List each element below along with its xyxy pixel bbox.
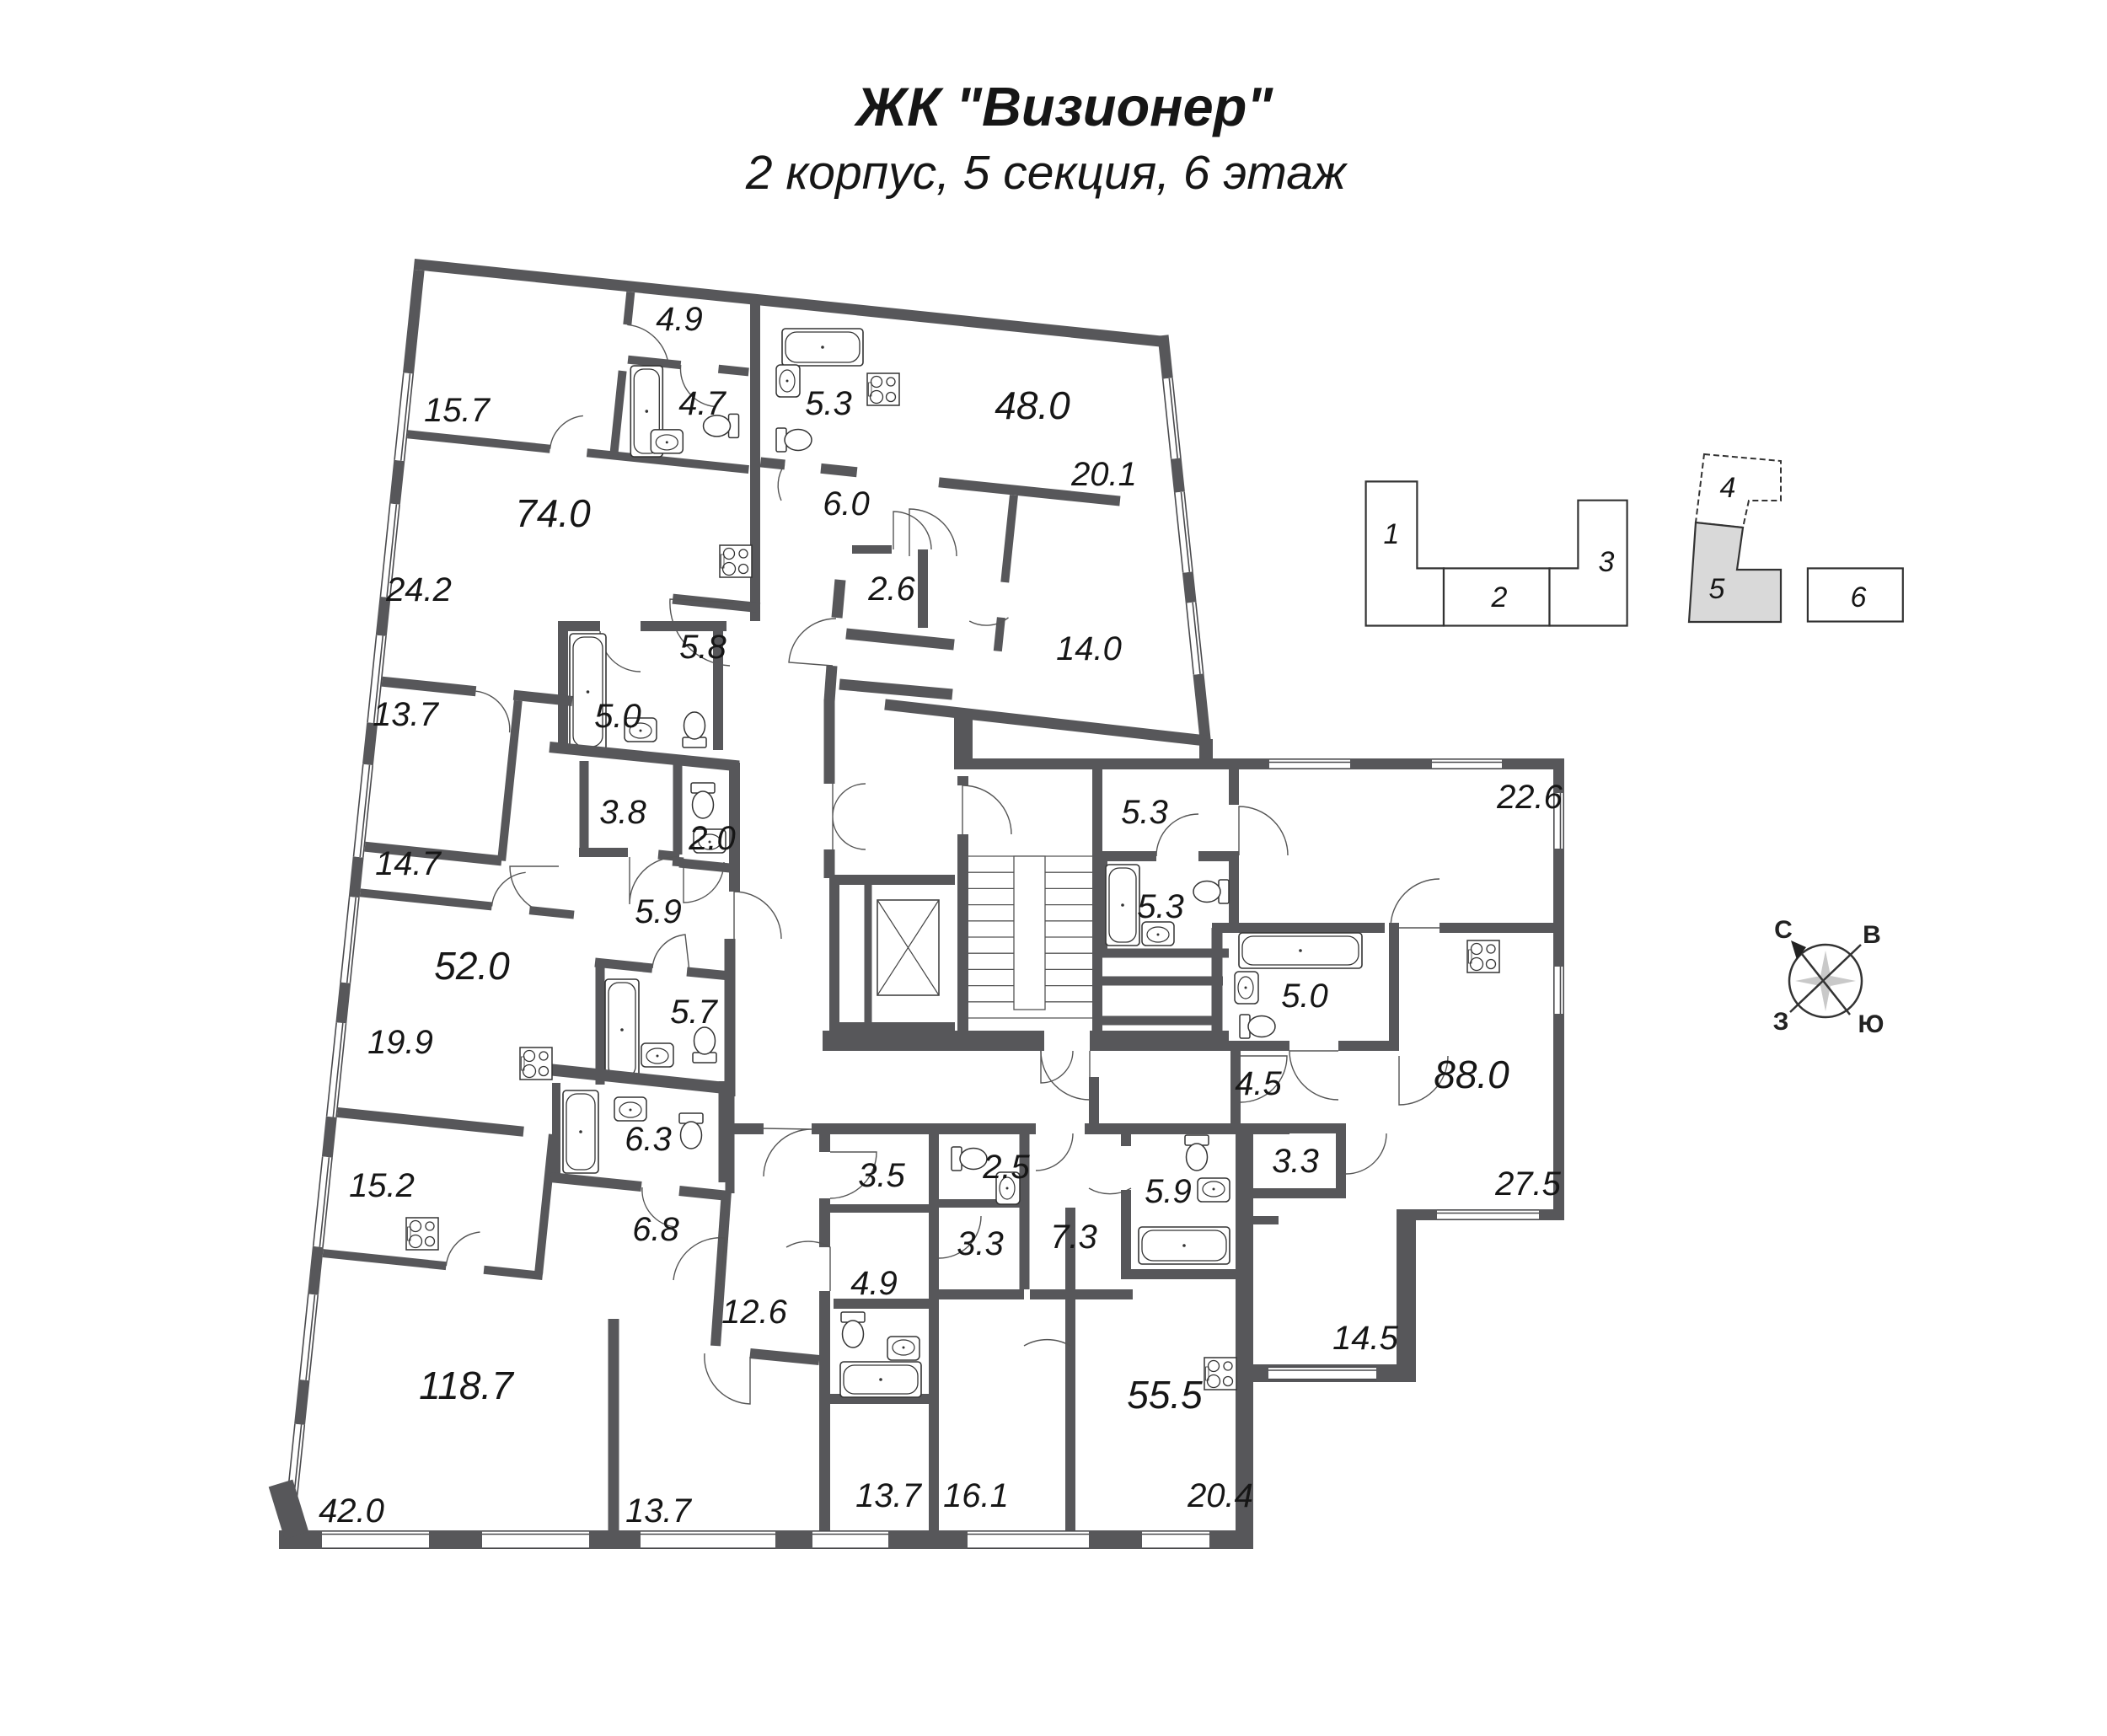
svg-text:5.7: 5.7 — [670, 994, 718, 1031]
svg-text:2: 2 — [1491, 581, 1508, 613]
svg-text:20.1: 20.1 — [1070, 456, 1137, 493]
svg-text:52.0: 52.0 — [434, 944, 510, 988]
svg-text:5.9: 5.9 — [1145, 1173, 1192, 1210]
svg-text:2.6: 2.6 — [867, 571, 915, 608]
svg-text:2 корпус, 5 секция, 6 этаж: 2 корпус, 5 секция, 6 этаж — [745, 146, 1348, 200]
svg-text:6: 6 — [1851, 581, 1867, 613]
svg-text:20.4: 20.4 — [1187, 1477, 1253, 1514]
svg-text:4.5: 4.5 — [1235, 1065, 1282, 1102]
svg-text:3.3: 3.3 — [1272, 1143, 1319, 1180]
svg-text:7.3: 7.3 — [1050, 1219, 1097, 1256]
svg-text:27.5: 27.5 — [1494, 1165, 1562, 1203]
svg-text:4.9: 4.9 — [656, 301, 703, 338]
svg-text:15.2: 15.2 — [349, 1167, 415, 1204]
svg-text:3: 3 — [1599, 546, 1615, 578]
svg-text:В: В — [1863, 921, 1881, 949]
svg-text:22.6: 22.6 — [1496, 779, 1563, 816]
svg-text:48.0: 48.0 — [995, 383, 1070, 427]
svg-text:5.8: 5.8 — [679, 629, 726, 666]
svg-text:14.7: 14.7 — [375, 845, 442, 882]
svg-text:14.5: 14.5 — [1332, 1320, 1399, 1357]
svg-text:5.3: 5.3 — [1137, 888, 1184, 925]
svg-text:6.8: 6.8 — [632, 1211, 679, 1248]
svg-text:3.8: 3.8 — [599, 794, 646, 831]
svg-text:З: З — [1773, 1008, 1789, 1036]
svg-text:16.1: 16.1 — [943, 1477, 1009, 1514]
svg-text:13.7: 13.7 — [855, 1477, 923, 1514]
svg-text:Ю: Ю — [1858, 1010, 1885, 1038]
svg-text:4: 4 — [1720, 472, 1736, 504]
svg-text:5.0: 5.0 — [1281, 978, 1328, 1015]
svg-text:5.0: 5.0 — [594, 698, 641, 735]
svg-text:55.5: 55.5 — [1127, 1373, 1203, 1417]
svg-text:2.0: 2.0 — [688, 820, 736, 857]
svg-text:118.7: 118.7 — [419, 1364, 514, 1407]
svg-text:13.7: 13.7 — [625, 1492, 693, 1530]
svg-text:13.7: 13.7 — [373, 696, 440, 733]
svg-text:2.5: 2.5 — [982, 1149, 1030, 1186]
svg-text:1: 1 — [1384, 518, 1400, 550]
svg-text:5.3: 5.3 — [805, 385, 852, 422]
svg-text:ЖК "Визионер": ЖК "Визионер" — [854, 76, 1273, 137]
svg-text:3.5: 3.5 — [858, 1157, 905, 1194]
svg-text:6.0: 6.0 — [823, 485, 870, 522]
svg-text:3.3: 3.3 — [957, 1225, 1004, 1262]
svg-text:74.0: 74.0 — [515, 491, 591, 535]
svg-text:15.7: 15.7 — [424, 392, 491, 429]
svg-text:5: 5 — [1709, 573, 1725, 605]
svg-text:88.0: 88.0 — [1434, 1053, 1509, 1096]
svg-text:С: С — [1774, 916, 1793, 944]
svg-text:5.3: 5.3 — [1121, 794, 1168, 831]
svg-text:6.3: 6.3 — [625, 1121, 672, 1158]
svg-text:14.0: 14.0 — [1056, 630, 1122, 667]
svg-text:24.2: 24.2 — [385, 571, 452, 608]
svg-text:4.9: 4.9 — [850, 1265, 898, 1302]
svg-text:12.6: 12.6 — [721, 1294, 788, 1331]
svg-text:5.9: 5.9 — [635, 893, 682, 930]
svg-text:42.0: 42.0 — [319, 1492, 384, 1530]
svg-text:4.7: 4.7 — [678, 385, 726, 422]
svg-text:19.9: 19.9 — [367, 1024, 433, 1061]
